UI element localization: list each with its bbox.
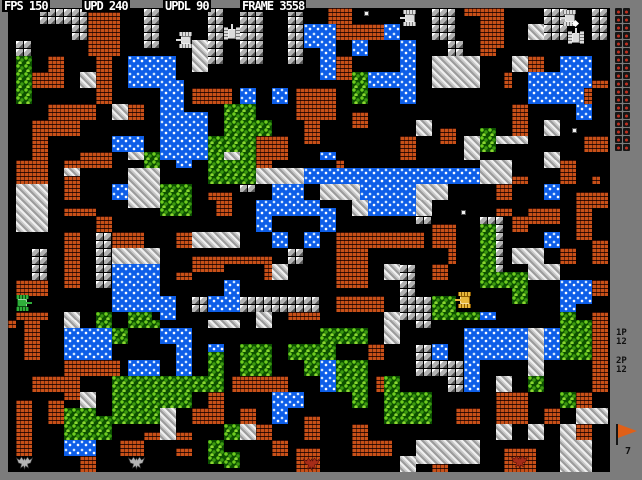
- tile-brick: [272, 440, 288, 456]
- tile-brick: [296, 88, 320, 120]
- tile-brick: [400, 136, 416, 160]
- tile-water: [272, 408, 288, 424]
- enemy-reserve-icon: [623, 56, 630, 63]
- tile-water: [384, 24, 400, 40]
- tile-steel: [448, 376, 464, 392]
- hud-fps: FPS 150: [2, 0, 50, 12]
- tile-brick: [256, 160, 272, 168]
- tile-trees: [352, 72, 368, 104]
- tile-trees: [208, 136, 224, 160]
- tile-brick: [32, 120, 80, 136]
- enemy-reserve-icon: [623, 48, 630, 55]
- enemy-reserve-grid: [615, 8, 631, 152]
- tile-steel: [192, 296, 208, 312]
- tile-brick: [144, 432, 160, 440]
- tile-brick: [224, 256, 272, 264]
- tile-water: [480, 328, 528, 360]
- tile-water: [304, 168, 320, 184]
- tile-brick: [368, 344, 384, 360]
- tile-brick: [512, 216, 528, 232]
- tile-brick: [512, 176, 528, 184]
- tile-water: [256, 200, 272, 232]
- tile-steel: [432, 360, 464, 376]
- tile-ice: [416, 120, 432, 136]
- tile-ice: [528, 328, 544, 376]
- tile-trees: [432, 296, 456, 312]
- tile-brick: [64, 232, 80, 288]
- tile-ice: [256, 320, 272, 328]
- tile-water: [240, 88, 256, 104]
- tile-trees: [16, 56, 32, 104]
- tile-trees: [96, 320, 112, 328]
- tile-ice: [416, 184, 448, 200]
- tile-trees: [224, 424, 240, 440]
- enemy-reserve-icon: [615, 112, 622, 119]
- tile-brick: [464, 8, 480, 16]
- tile-ice: [256, 312, 272, 320]
- tile-brick: [176, 432, 192, 440]
- tile-trees: [560, 312, 576, 320]
- tile-brick: [336, 296, 384, 312]
- tile-brick: [64, 160, 112, 168]
- enemy-reserve-icon: [615, 72, 622, 79]
- enemy-tank: [176, 32, 192, 48]
- tile-brick: [336, 56, 352, 80]
- tile-water: [544, 328, 560, 360]
- tile-ice: [64, 312, 80, 320]
- tile-steel: [416, 296, 432, 320]
- tile-brick: [576, 392, 592, 408]
- tile-brick: [592, 240, 608, 264]
- enemy-reserve-icon: [623, 32, 630, 39]
- tile-ice: [224, 152, 240, 160]
- tile-brick: [176, 232, 192, 248]
- tile-brick: [504, 72, 512, 88]
- tile-steel: [240, 184, 256, 192]
- tile-water: [304, 24, 320, 48]
- tile-ice: [432, 56, 480, 88]
- tile-ice: [192, 40, 208, 72]
- tile-water: [160, 56, 176, 80]
- tile-brick: [576, 208, 592, 240]
- tile-ice: [128, 168, 160, 208]
- enemy-reserve-icon: [623, 120, 630, 127]
- tile-water: [360, 184, 416, 216]
- tile-ice: [16, 184, 48, 232]
- tile-water: [304, 232, 320, 248]
- tile-brick: [112, 232, 144, 248]
- tile-brick: [128, 104, 144, 120]
- tile-ice: [576, 408, 608, 424]
- enemy-reserve-icon: [615, 40, 622, 47]
- enemy-reserve-icon: [623, 128, 630, 135]
- eagle-base-icon: [128, 455, 145, 471]
- tile-brick: [592, 320, 608, 392]
- tile-brick: [16, 312, 48, 320]
- tile-trees: [160, 376, 192, 408]
- player1-label: 1P: [616, 329, 627, 337]
- tile-ice: [496, 136, 528, 144]
- tile-brick: [496, 184, 512, 200]
- enemy-reserve-icon: [615, 8, 622, 15]
- tile-steel: [96, 232, 112, 288]
- tile-steel: [416, 216, 432, 224]
- enemy-reserve-icon: [623, 16, 630, 23]
- tile-ice: [192, 232, 240, 248]
- enemy-reserve-icon: [623, 64, 630, 71]
- tile-trees: [384, 376, 400, 392]
- tile-water: [528, 72, 560, 104]
- tile-ice: [528, 264, 560, 280]
- player2-lives: 12: [616, 366, 627, 374]
- enemy-reserve-icon: [623, 40, 630, 47]
- tile-brick: [256, 136, 288, 160]
- tile-brick: [48, 56, 64, 72]
- tile-water: [128, 56, 160, 88]
- tile-water: [128, 360, 160, 376]
- bullet: [365, 12, 368, 15]
- enemy-reserve-icon: [623, 80, 630, 87]
- tile-ice: [512, 248, 544, 264]
- tile-water: [160, 328, 192, 344]
- tile-ice: [80, 392, 96, 408]
- tile-brick: [336, 248, 368, 288]
- tile-brick: [584, 88, 592, 104]
- tile-brick: [376, 376, 384, 392]
- player2-label: 2P: [616, 357, 627, 365]
- tile-steel: [240, 8, 264, 64]
- tile-brick: [480, 48, 496, 56]
- tile-brick: [32, 376, 64, 392]
- enemy-reserve-icon: [615, 16, 622, 23]
- tile-ice: [544, 120, 560, 136]
- tile-water: [432, 344, 448, 360]
- enemy-reserve-icon: [615, 80, 622, 87]
- tile-brick: [120, 440, 144, 456]
- tile-trees: [480, 128, 496, 152]
- tile-trees: [320, 344, 336, 360]
- tile-water: [576, 104, 592, 120]
- tile-brick: [592, 312, 608, 320]
- enemy-reserve-icon: [615, 136, 622, 143]
- tile-trees: [64, 408, 96, 440]
- tile-brick: [192, 256, 224, 272]
- tile-ice: [416, 200, 432, 216]
- bullet: [462, 211, 465, 214]
- tile-water: [64, 328, 112, 360]
- tile-water: [320, 24, 336, 56]
- tile-brick: [456, 408, 480, 424]
- tile-brick: [64, 176, 80, 200]
- player-tank: [16, 295, 32, 311]
- tile-ice: [464, 136, 480, 160]
- tile-ice: [256, 168, 304, 184]
- tile-ice: [80, 72, 96, 88]
- tile-ice: [112, 248, 160, 264]
- tile-trees: [128, 312, 152, 320]
- tile-water: [184, 112, 208, 160]
- enemy-tank: [224, 24, 240, 40]
- tile-brick: [512, 104, 528, 136]
- eagle-base-icon: [16, 455, 33, 471]
- tile-brick: [544, 408, 560, 424]
- tile-brick: [192, 88, 232, 104]
- tile-trees: [560, 320, 592, 360]
- tile-water: [464, 328, 480, 392]
- tile-steel: [288, 248, 304, 264]
- tile-ice: [480, 160, 512, 184]
- tile-brick: [496, 392, 528, 424]
- tile-steel: [416, 320, 432, 328]
- tile-trees: [160, 184, 192, 216]
- tile-brick: [24, 320, 40, 360]
- tile-brick: [96, 216, 112, 232]
- enemy-reserve-icon: [615, 104, 622, 111]
- tile-brick: [48, 400, 64, 424]
- tile-ice: [272, 264, 288, 280]
- tile-brick: [64, 208, 96, 216]
- enemy-reserve-icon: [623, 112, 630, 119]
- tile-brick: [352, 424, 368, 440]
- tile-brick: [352, 112, 368, 128]
- tile-trees: [112, 376, 160, 424]
- tile-ice: [544, 152, 560, 160]
- hud-frame: FRAME 3558: [240, 0, 306, 12]
- tile-brick: [328, 8, 352, 24]
- tile-water: [560, 304, 576, 312]
- enemy-tank: [400, 10, 416, 26]
- tile-ice: [160, 408, 176, 440]
- tile-water: [112, 264, 160, 312]
- tile-brick: [528, 56, 544, 72]
- tile-brick: [336, 160, 344, 168]
- tile-trees: [96, 312, 112, 320]
- tile-water: [320, 168, 480, 184]
- tile-water: [544, 184, 560, 200]
- tile-trees: [208, 160, 256, 184]
- enemy-reserve-icon: [615, 64, 622, 71]
- tile-ice: [384, 320, 400, 344]
- tile-water: [560, 280, 592, 304]
- tile-brick: [96, 56, 112, 104]
- tile-water: [304, 200, 320, 216]
- tile-ice: [64, 320, 80, 328]
- enemy-reserve-icon: [623, 144, 630, 151]
- enemy-reserve-icon: [623, 72, 630, 79]
- enemy-reserve-icon: [615, 128, 622, 135]
- tile-water: [272, 88, 288, 104]
- tile-brick: [336, 232, 424, 248]
- tile-ice: [240, 424, 256, 440]
- tile-ice: [400, 456, 416, 472]
- tile-steel: [208, 8, 224, 64]
- tile-brick: [64, 360, 120, 376]
- tile-brick: [320, 88, 336, 120]
- enemy-reserve-icon: [623, 96, 630, 103]
- tile-trees: [128, 320, 160, 328]
- tile-brick: [256, 424, 272, 440]
- enemy-reserve-icon: [615, 24, 622, 31]
- tile-water: [368, 72, 416, 88]
- tile-steel: [592, 8, 608, 40]
- enemy-tank: [568, 28, 584, 44]
- enemy-reserve-icon: [623, 24, 630, 31]
- tile-trees: [208, 440, 224, 464]
- enemy-reserve-icon: [615, 144, 622, 151]
- tile-steel: [144, 8, 160, 48]
- hud-updl: UPDL 90: [163, 0, 211, 12]
- tile-brick: [16, 280, 48, 296]
- enemy-reserve-icon: [615, 32, 622, 39]
- tile-ice: [384, 264, 400, 280]
- tile-brick: [592, 280, 608, 296]
- tile-water: [160, 296, 176, 320]
- tile-trees: [112, 328, 128, 344]
- tile-ice: [416, 440, 480, 464]
- tile-water: [320, 360, 336, 392]
- tile-water: [208, 296, 240, 312]
- tile-trees: [304, 360, 320, 376]
- tile-water: [320, 152, 336, 160]
- enemy-reserve-icon: [615, 88, 622, 95]
- tile-brick: [240, 408, 256, 424]
- tile-water: [176, 160, 192, 168]
- tile-steel: [32, 248, 48, 280]
- tile-ice: [528, 424, 544, 440]
- tile-brick: [88, 8, 120, 56]
- tile-brick: [64, 376, 80, 400]
- tile-brick: [176, 272, 192, 280]
- tile-brick: [80, 152, 112, 160]
- tile-trees: [192, 376, 224, 392]
- tile-water: [272, 392, 304, 408]
- tile-water: [352, 40, 368, 56]
- eagle-base-icon: [511, 454, 528, 470]
- tile-brick: [16, 160, 48, 184]
- tile-steel: [496, 224, 504, 272]
- enemy-reserve-icon: [615, 96, 622, 103]
- tile-brick: [48, 104, 96, 120]
- tile-water: [112, 136, 144, 152]
- enemy-reserve-icon: [623, 88, 630, 95]
- tile-trees: [144, 152, 160, 160]
- tile-ice: [512, 56, 528, 72]
- tile-ice: [208, 320, 240, 328]
- tile-brick: [576, 424, 592, 440]
- tile-brick: [304, 120, 320, 144]
- tile-ice: [128, 152, 144, 160]
- tile-brick: [32, 136, 48, 160]
- tile-trees: [512, 288, 528, 304]
- tile-brick: [560, 248, 576, 264]
- tile-steel: [400, 264, 416, 320]
- tile-brick: [584, 136, 608, 152]
- tile-trees: [224, 452, 240, 468]
- tile-trees: [480, 272, 528, 288]
- tile-steel: [416, 344, 432, 376]
- tile-trees: [208, 352, 224, 376]
- tile-ice: [544, 160, 560, 168]
- hud-upd: UPD 240: [82, 0, 130, 12]
- tile-brick: [528, 208, 560, 224]
- tile-trees: [528, 376, 544, 392]
- tile-trees: [240, 344, 272, 376]
- tile-water: [272, 184, 304, 216]
- tile-brick: [576, 192, 608, 208]
- tile-brick: [176, 448, 192, 456]
- tile-brick: [592, 176, 600, 184]
- status-sidebar: 1P 12 2P 12 7: [610, 0, 642, 480]
- enemy-reserve-icon: [623, 104, 630, 111]
- tile-trees: [96, 416, 112, 440]
- tile-water: [176, 344, 192, 376]
- game-screen: FPS 150UPD 240UPDL 90FRAME 3558 1P 12 2P…: [0, 0, 642, 480]
- tile-brick: [440, 128, 456, 144]
- tile-brick: [352, 440, 392, 456]
- tile-ice: [496, 424, 512, 440]
- tile-brick: [16, 400, 32, 440]
- tile-steel: [240, 296, 320, 312]
- tile-brick: [432, 264, 448, 280]
- tile-trees: [288, 344, 320, 360]
- tile-trees: [432, 312, 480, 320]
- tile-trees: [320, 328, 368, 344]
- tile-brick: [216, 192, 232, 216]
- tile-brick: [32, 72, 64, 88]
- tile-ice: [112, 104, 128, 120]
- tile-brick: [480, 8, 504, 48]
- tile-water: [480, 312, 496, 320]
- tile-brick: [264, 264, 272, 280]
- tile-steel: [432, 8, 456, 40]
- tile-water: [544, 232, 560, 248]
- bullet: [573, 129, 576, 132]
- enemy-reserve-icon: [615, 48, 622, 55]
- tile-brick: [496, 208, 512, 216]
- tile-ice: [352, 200, 368, 216]
- tile-brick: [304, 416, 320, 440]
- tile-brick: [592, 80, 608, 88]
- tile-brick: [16, 440, 32, 456]
- tile-brick: [560, 160, 576, 184]
- left-border: [0, 0, 8, 480]
- tile-brick: [288, 312, 320, 320]
- tile-trees: [384, 392, 432, 424]
- tile-ice: [528, 24, 544, 40]
- tile-steel: [448, 40, 464, 56]
- tile-brick: [208, 392, 224, 424]
- tile-ice: [320, 184, 360, 200]
- tile-water: [160, 80, 184, 160]
- tile-water: [272, 232, 288, 248]
- tile-steel: [480, 216, 504, 224]
- player1-lives: 12: [616, 338, 627, 346]
- tile-water: [320, 208, 336, 232]
- enemy-reserve-icon: [623, 8, 630, 15]
- tile-trees: [144, 160, 160, 168]
- tile-water: [112, 184, 128, 200]
- tile-water: [64, 440, 96, 456]
- tile-brick: [448, 232, 456, 264]
- eagle-base-icon: [303, 456, 320, 472]
- tile-trees: [560, 392, 576, 408]
- stage-flag-icon: [618, 424, 637, 438]
- tile-ice: [384, 312, 400, 320]
- tile-trees: [480, 224, 496, 272]
- enemy-reserve-icon: [615, 120, 622, 127]
- enemy-reserve-icon: [623, 136, 630, 143]
- stage-number: 7: [625, 448, 631, 456]
